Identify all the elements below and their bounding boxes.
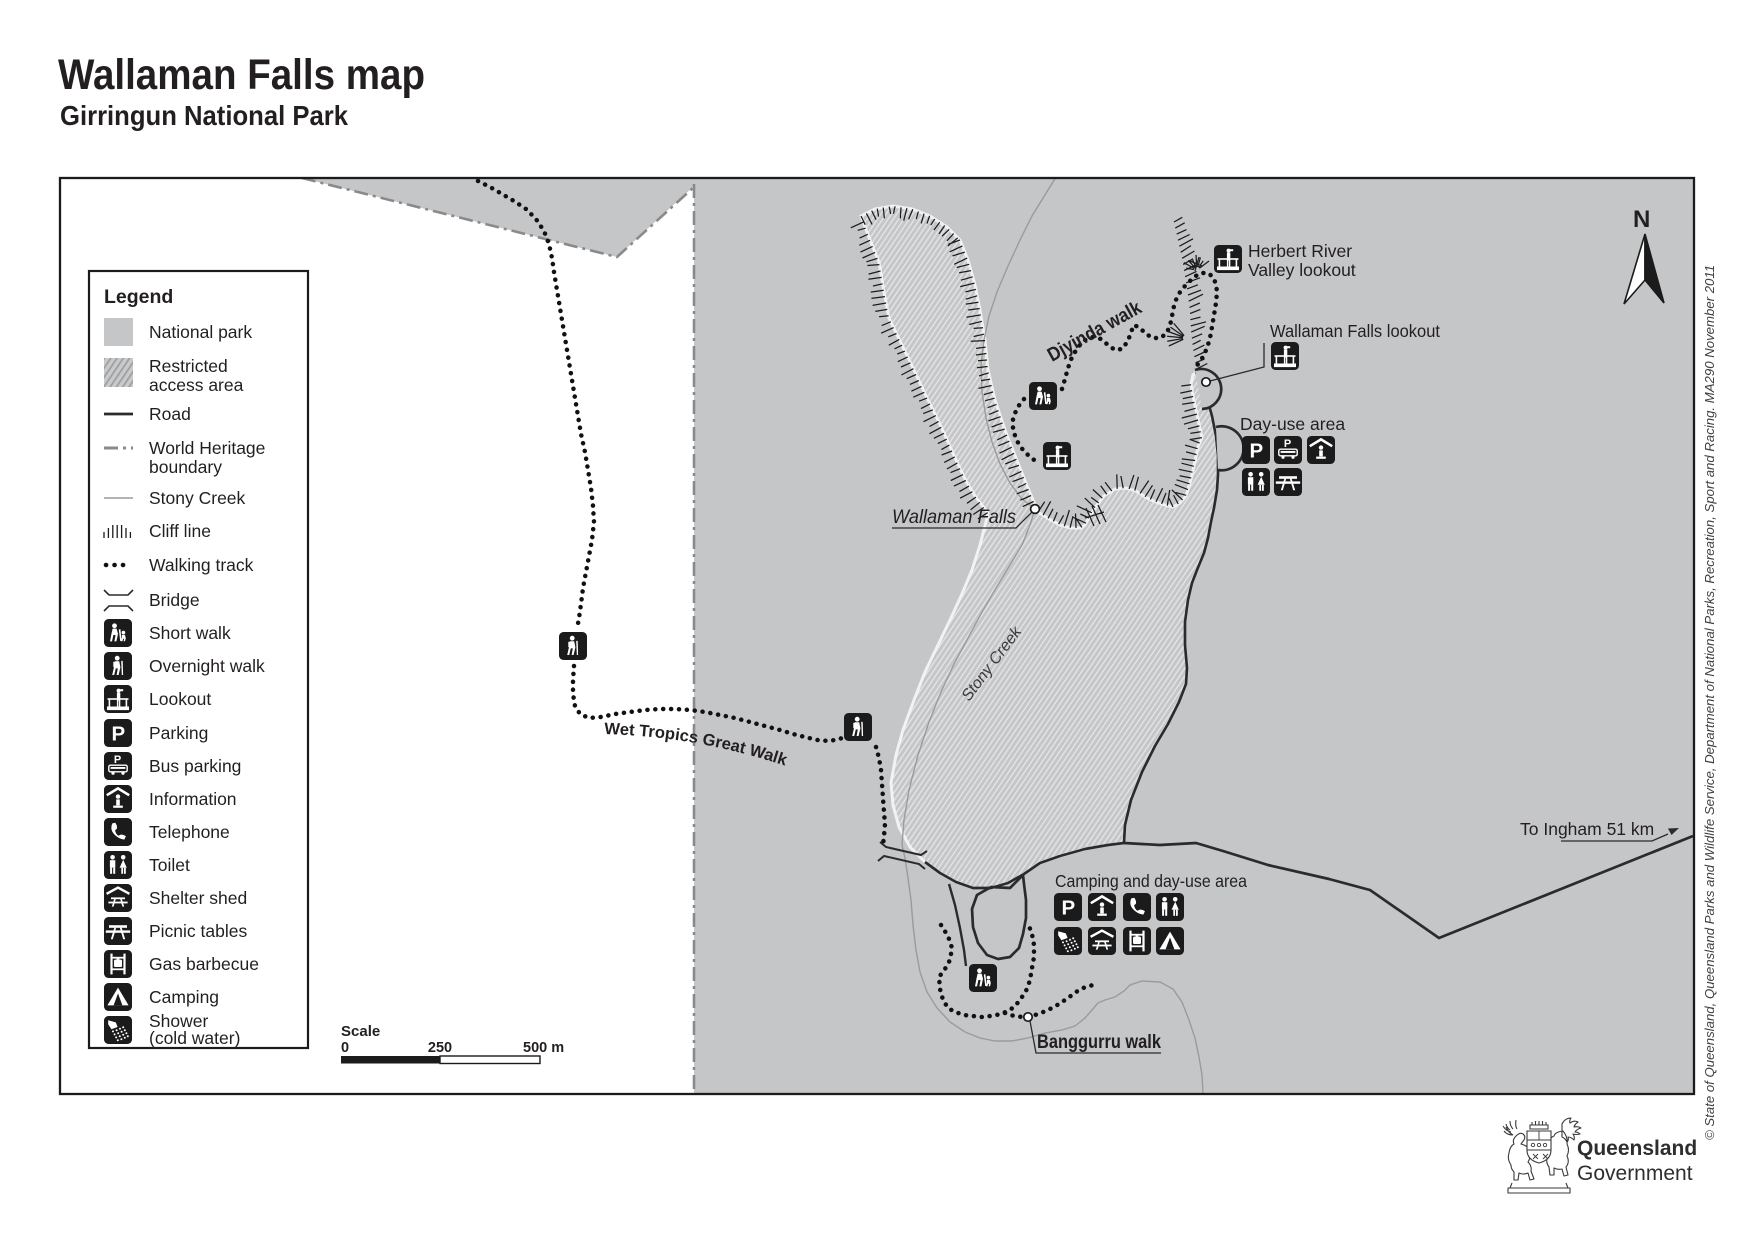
svg-text:Toilet: Toilet [149,855,190,875]
svg-text:Legend: Legend [104,286,173,308]
svg-text:© State of Queensland, Queensl: © State of Queensland, Queensland Parks … [1702,265,1717,1140]
svg-text:Picnic tables: Picnic tables [149,921,247,941]
svg-text:To Ingham 51 km: To Ingham 51 km [1520,819,1654,839]
svg-text:Queensland: Queensland [1577,1137,1697,1160]
svg-text:Day-use area: Day-use area [1240,414,1345,434]
svg-text:Overnight walk: Overnight walk [149,656,265,676]
svg-text:Short walk: Short walk [149,623,231,643]
svg-text:(cold water): (cold water) [149,1028,240,1048]
svg-text:Parking: Parking [149,723,208,743]
svg-text:Bus parking: Bus parking [149,756,241,776]
svg-text:Scale: Scale [341,1023,380,1040]
svg-text:Shelter shed: Shelter shed [149,888,247,908]
svg-text:Herbert River: Herbert River [1248,241,1352,261]
svg-text:Restricted: Restricted [149,356,228,376]
svg-text:Bridge: Bridge [149,590,200,610]
svg-text:Cliff line: Cliff line [149,521,211,541]
svg-text:Walking track: Walking track [149,555,254,575]
svg-text:Banggurru walk: Banggurru walk [1037,1031,1161,1053]
svg-text:Valley lookout: Valley lookout [1248,260,1356,280]
svg-text:Wallaman Falls lookout: Wallaman Falls lookout [1270,321,1440,341]
svg-text:500 m: 500 m [523,1040,564,1056]
svg-text:Information: Information [149,789,237,809]
svg-text:World Heritage: World Heritage [149,438,265,458]
svg-text:boundary: boundary [149,457,222,477]
svg-text:Camping: Camping [149,987,219,1007]
svg-text:Lookout: Lookout [149,689,211,709]
svg-text:Gas barbecue: Gas barbecue [149,954,259,974]
svg-text:Road: Road [149,404,191,424]
svg-text:Government: Government [1577,1162,1693,1185]
svg-text:250: 250 [428,1040,452,1056]
svg-text:0: 0 [341,1040,349,1056]
svg-text:N: N [1633,206,1650,233]
svg-text:Stony Creek: Stony Creek [149,488,246,508]
svg-text:access area: access area [149,375,244,395]
svg-text:Girringun National Park: Girringun National Park [60,100,348,131]
svg-text:Wallaman Falls map: Wallaman Falls map [58,51,425,99]
svg-text:Camping and day-use area: Camping and day-use area [1055,871,1247,891]
svg-text:Telephone: Telephone [149,822,230,842]
svg-text:Wallaman Falls: Wallaman Falls [892,506,1016,528]
svg-text:National park: National park [149,322,252,342]
